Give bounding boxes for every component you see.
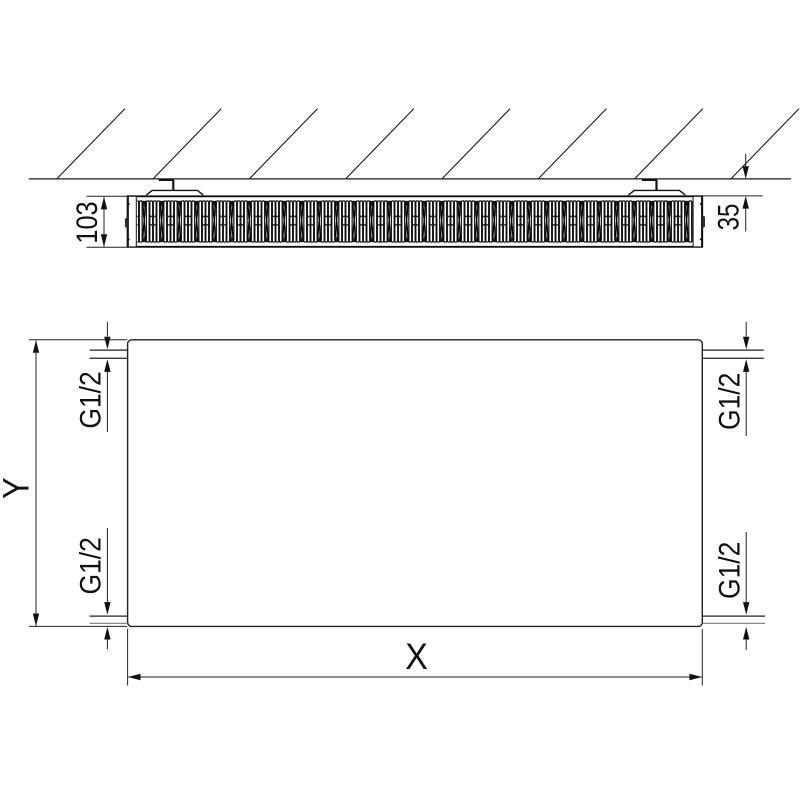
- svg-text:G1/2: G1/2: [74, 537, 107, 594]
- svg-text:G1/2: G1/2: [713, 373, 746, 430]
- svg-text:G1/2: G1/2: [713, 542, 746, 599]
- svg-text:103: 103: [70, 201, 103, 243]
- svg-text:G1/2: G1/2: [74, 371, 107, 428]
- svg-text:Y: Y: [0, 477, 37, 498]
- svg-text:35: 35: [712, 204, 745, 231]
- svg-text:X: X: [405, 637, 428, 677]
